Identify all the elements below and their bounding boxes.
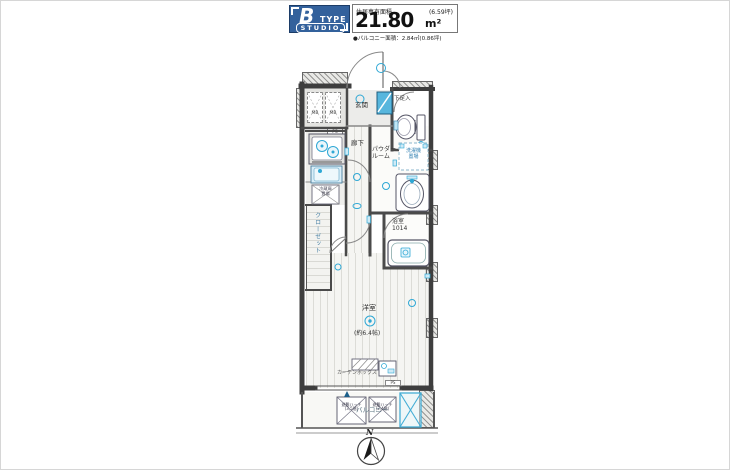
- floorplan-graphics: [0, 0, 730, 470]
- curtain-box-label: カーテンボックス: [337, 371, 377, 377]
- compass-north-label: N: [366, 428, 373, 437]
- washbasin-icon: [396, 174, 429, 211]
- main-room-size-label: (約6.4帖): [354, 331, 380, 338]
- stove-icon: [309, 134, 345, 164]
- kitchen-sink-icon: [311, 166, 342, 183]
- meter-box-diagonals: [307, 92, 341, 123]
- floorplan-page: B TYPE STUDIO 住居専有面積 (6.59坪) 21.80 m² ●バ…: [0, 0, 730, 470]
- mb-right-label: MB: [325, 112, 341, 117]
- bathtub-icon: [388, 240, 429, 266]
- equipment-space-icon: [400, 393, 421, 427]
- closet-label: クローゼット: [313, 212, 320, 254]
- fridge-label-line2: 置場: [313, 192, 338, 197]
- shoe-cabinet-icon: [377, 92, 392, 114]
- ps-balcony-label: PS: [385, 380, 401, 386]
- powder-room-label-line2: ルーム: [372, 154, 396, 161]
- washer-label-line2: 置場: [401, 155, 426, 161]
- main-room-label: 洋室: [362, 305, 376, 313]
- compass-icon: [358, 438, 385, 465]
- ps-top-label: PS: [327, 131, 343, 136]
- hatch2-label-line2: (2,4階): [369, 407, 396, 411]
- shoe-box-label: 下足入: [394, 96, 411, 102]
- hatch1-label-line2: (3,5階): [337, 407, 366, 411]
- drain-marker-icon: [344, 391, 350, 397]
- mb-left-label: MB: [307, 112, 323, 117]
- genkan-label: 玄関: [355, 102, 368, 109]
- bath-size-label: 1014: [392, 226, 407, 233]
- toilet-icon: [394, 115, 425, 147]
- ac-unit-icon: [379, 361, 396, 376]
- hallway-label: 廊下: [351, 140, 364, 147]
